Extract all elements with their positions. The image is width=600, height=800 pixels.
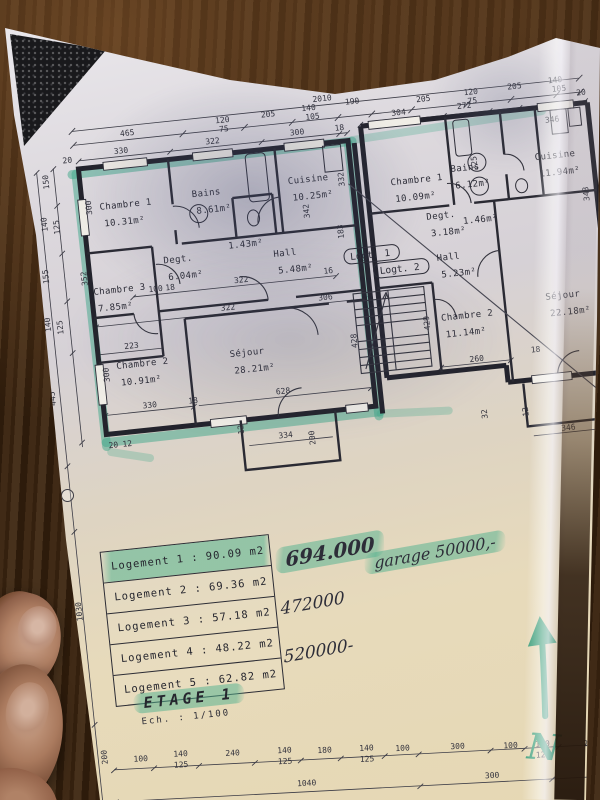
- dimension-label: 342: [301, 203, 311, 218]
- dimension-label: 300: [485, 771, 500, 781]
- dimension-label: 300: [450, 741, 465, 751]
- dimension-label: 16: [323, 266, 334, 276]
- dimension-label: 429: [422, 315, 432, 330]
- dimension-label: 300: [289, 127, 304, 137]
- dimension-label: 100: [395, 743, 410, 753]
- dimension-label: 125: [360, 754, 375, 764]
- dimension-label: 200: [307, 430, 317, 445]
- dimension-label: 12: [236, 424, 246, 435]
- paper-sheet: 1001401252401401251801401251003001001401…: [0, 0, 600, 800]
- dimension-label: 12: [122, 439, 133, 449]
- dimension-label: 300: [84, 200, 94, 215]
- windows: [73, 100, 600, 439]
- room-area: 3.18m²: [431, 226, 467, 240]
- dimension-label: 240: [225, 748, 240, 758]
- dimension-label: 260: [469, 354, 484, 364]
- room-area: 11.14m²: [445, 326, 487, 340]
- area-table: Logement 1 : 90.09 m2 Logement 2 : 69.36…: [100, 534, 285, 707]
- dimension-label: 18: [165, 283, 176, 293]
- dimension-label: 428: [349, 333, 359, 348]
- dimension-label: 190: [344, 96, 359, 106]
- dimension-label: 125: [174, 760, 189, 770]
- dimension-label: 75: [219, 124, 230, 134]
- room-name: Degt.: [163, 254, 193, 267]
- dimension-label: 306: [318, 292, 333, 302]
- dimension-label: 322: [220, 302, 235, 312]
- dimension-label: 140: [359, 743, 374, 753]
- room-name: Cuisine: [287, 173, 329, 187]
- dimension-label: 304: [391, 107, 406, 117]
- room-area: 1.46m²: [463, 213, 499, 227]
- dimension-label: 272: [457, 101, 472, 111]
- dimension-label: 105: [305, 111, 320, 121]
- room-name: Bains: [191, 187, 221, 200]
- dimension-label: 628: [275, 386, 290, 396]
- room-area: 10.09m²: [395, 191, 437, 205]
- dimension-label: 125: [55, 320, 65, 335]
- dimension-label: 200: [99, 749, 109, 764]
- hole-punch: [61, 489, 74, 502]
- dimension-label: 125: [52, 219, 62, 234]
- room-area: 7.85m²: [98, 301, 134, 315]
- room-area: 10.91m²: [121, 374, 163, 388]
- dimension-label: 205: [260, 109, 275, 119]
- dimension-label: 150: [41, 174, 51, 189]
- dimension-label: 12: [521, 406, 531, 417]
- room-area: 10.31m²: [104, 215, 146, 229]
- dimension-label: 140: [173, 749, 188, 759]
- room-name: Chambre 1: [390, 173, 443, 188]
- dimension-label: 32: [480, 409, 490, 420]
- room-name: Chambre 1: [99, 198, 152, 213]
- room-area: 1.43m²: [228, 238, 264, 252]
- dimension-label: 100: [503, 741, 518, 751]
- dimension-label: 332: [336, 171, 346, 186]
- photo-of-floor-plan: 1001401252401401251801401251003001001401…: [0, 0, 600, 800]
- room-area: 5.23m²: [441, 267, 477, 281]
- dimension-label: 183: [336, 224, 346, 239]
- dimension-label: 322: [234, 275, 249, 285]
- drawing-content: 1001401252401401251801401251003001001401…: [18, 55, 600, 800]
- dimension-label: 322: [205, 136, 220, 146]
- floor-plan-svg: 1001401252401401251801401251003001001401…: [18, 55, 600, 800]
- room-name: Séjour: [229, 346, 265, 361]
- dimension-label: 18: [188, 396, 199, 406]
- dimension-label: 180: [317, 745, 332, 755]
- dimension-label: 330: [113, 146, 128, 156]
- room-name: Degt.: [426, 210, 456, 223]
- dimension-label: 205: [416, 94, 431, 104]
- dimension-label: 100: [148, 284, 163, 294]
- dimension-label: 125: [278, 756, 293, 766]
- dimension-label: 140: [39, 217, 49, 232]
- dimension-label: 1040: [297, 778, 317, 788]
- room-name: Hall: [436, 252, 460, 264]
- dimension-label: 20: [62, 156, 73, 166]
- dimension-label: 225: [469, 155, 479, 170]
- room-area: 6.12m²: [455, 178, 491, 192]
- dimension-label: 223: [124, 341, 139, 351]
- dimension-label: 20: [108, 440, 119, 450]
- dimension-label: 352: [79, 271, 89, 286]
- dimension-label: 334: [278, 430, 293, 440]
- dimension-label: 18: [334, 123, 345, 133]
- room-area: 5.48m²: [278, 263, 314, 277]
- room-name: Hall: [273, 248, 297, 260]
- room-name: Chambre 3: [93, 283, 146, 298]
- room-area: 10.25m²: [292, 189, 334, 203]
- dimension-label: 155: [41, 269, 51, 284]
- room-name: Chambre 2: [116, 357, 169, 372]
- room-area: 6.04m²: [168, 270, 204, 284]
- dimension-label: 100: [133, 754, 148, 764]
- dimension-label: 465: [120, 128, 135, 138]
- dimension-label: 205: [507, 81, 522, 91]
- room-area: 28.21m²: [234, 363, 276, 377]
- room-name: Chambre 2: [441, 308, 494, 323]
- dimension-label: 300: [101, 367, 111, 382]
- dimension-label: 140: [277, 746, 292, 756]
- room-area: 8.61m²: [196, 203, 232, 217]
- dimension-label: 330: [142, 400, 157, 410]
